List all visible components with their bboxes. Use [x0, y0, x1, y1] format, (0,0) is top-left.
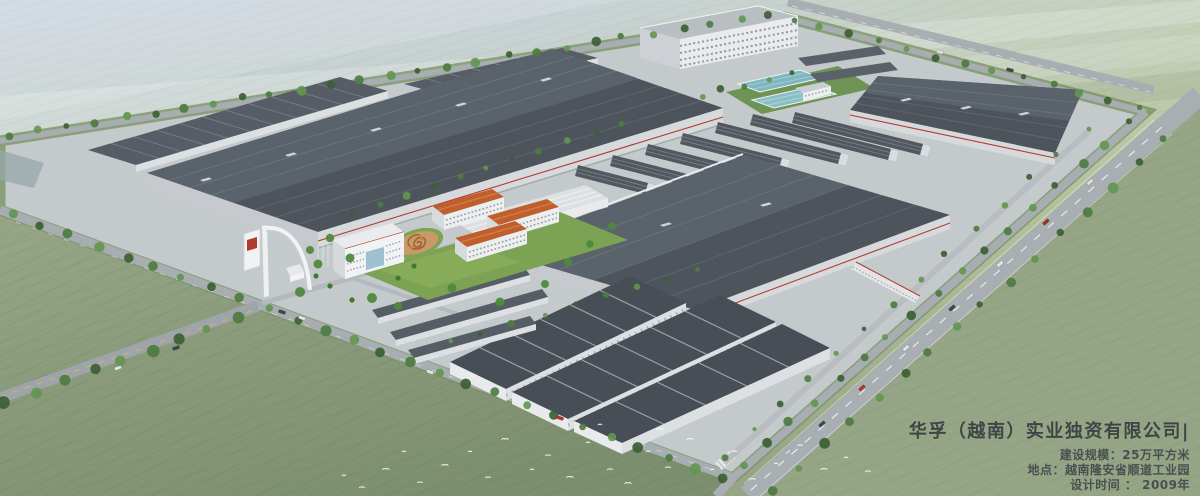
caption-location-line: 地点：越南隆安省顺道工业园	[909, 463, 1190, 478]
caption-year-line: 设计时间 ： 2009年	[909, 478, 1190, 493]
company-title: 华孚（越南）实业独资有限公司|	[909, 417, 1190, 443]
caption-block: 华孚（越南）实业独资有限公司| 建设规模：25万平方米 地点：越南隆安省顺道工业…	[909, 417, 1190, 496]
architectural-rendering-page: 华孚（越南）实业独资有限公司| 建设规模：25万平方米 地点：越南隆安省顺道工业…	[0, 0, 1200, 496]
caption-scale-line: 建设规模：25万平方米	[909, 448, 1190, 463]
